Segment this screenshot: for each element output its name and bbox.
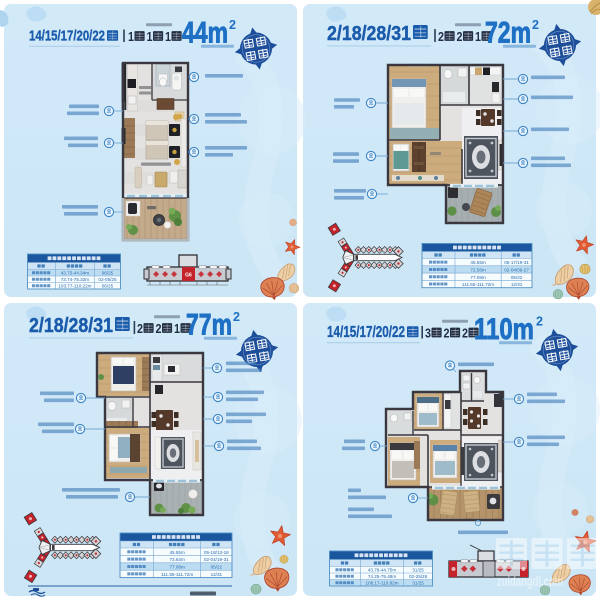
svg-text:02-05/25: 02-05/25 [98, 277, 117, 282]
svg-text:43.79-44.75m: 43.79-44.75m [368, 567, 397, 572]
svg-text:3: 3 [425, 327, 431, 341]
svg-text:14/15/17/20/22: 14/15/17/20/22 [29, 28, 105, 45]
svg-text:31/25: 31/25 [412, 580, 424, 585]
svg-text:31/25: 31/25 [412, 567, 424, 572]
svg-text:2: 2 [438, 30, 444, 44]
svg-text:02-25/26: 02-25/26 [409, 574, 428, 579]
svg-text:2: 2 [536, 314, 543, 329]
svg-text:1: 1 [475, 30, 481, 44]
svg-text:45.55m: 45.55m [470, 260, 485, 265]
svg-text:111.55-111.72m: 111.55-111.72m [161, 572, 193, 577]
svg-text:12/31: 12/31 [211, 572, 223, 577]
svg-text:2: 2 [457, 30, 463, 44]
svg-text:73.64m: 73.64m [169, 557, 184, 562]
svg-text:2: 2 [233, 309, 240, 324]
svg-text:108.17-110.82m: 108.17-110.82m [365, 580, 398, 585]
svg-text:G6: G6 [185, 273, 192, 279]
svg-text:1: 1 [128, 30, 134, 44]
svg-text:77m: 77m [186, 309, 232, 342]
svg-text:2/18/28/31: 2/18/28/31 [29, 315, 113, 337]
svg-text:2: 2 [229, 17, 236, 32]
svg-text:44m: 44m [182, 17, 228, 50]
svg-text:72.56m: 72.56m [470, 268, 485, 273]
svg-text:12/31: 12/31 [511, 282, 523, 287]
svg-text:45.55m: 45.55m [169, 550, 184, 555]
svg-text:06/25: 06/25 [102, 283, 114, 288]
svg-text:zuidangdi.com: zuidangdi.com [497, 574, 563, 589]
svg-text:1: 1 [174, 322, 180, 336]
svg-text:1: 1 [147, 30, 153, 44]
svg-text:2: 2 [156, 322, 162, 336]
svg-text:05/22: 05/22 [511, 275, 523, 280]
svg-text:14/15/17/20/22: 14/15/17/20/22 [327, 324, 405, 341]
svg-text:2: 2 [532, 17, 539, 32]
svg-text:74.25-75.48m: 74.25-75.48m [368, 574, 397, 579]
svg-text:02-04/19-31: 02-04/19-31 [204, 557, 229, 562]
svg-text:1: 1 [165, 30, 171, 44]
svg-text:110m: 110m [474, 313, 534, 346]
svg-text:43.75-44.34m: 43.75-44.34m [61, 270, 90, 275]
svg-text:2: 2 [444, 327, 450, 341]
svg-text:05/22: 05/22 [211, 565, 223, 570]
svg-text:02-04/09-27: 02-04/09-27 [504, 268, 529, 273]
svg-text:77.08m: 77.08m [169, 565, 184, 570]
svg-text:77.08m: 77.08m [470, 275, 485, 280]
svg-text:72m: 72m [485, 17, 531, 50]
svg-text:05-18/13-18: 05-18/13-18 [204, 550, 229, 555]
svg-text:2: 2 [462, 327, 468, 341]
svg-text:111.55-111.72m: 111.55-111.72m [462, 282, 494, 287]
svg-text:2/18/28/31: 2/18/28/31 [327, 23, 411, 45]
svg-text:06/25: 06/25 [102, 270, 114, 275]
svg-text:05-17/19-31: 05-17/19-31 [504, 260, 529, 265]
svg-text:103.77-110.22m: 103.77-110.22m [58, 283, 91, 288]
svg-text:2: 2 [137, 322, 143, 336]
svg-text:73.74-75.32m: 73.74-75.32m [61, 277, 90, 282]
